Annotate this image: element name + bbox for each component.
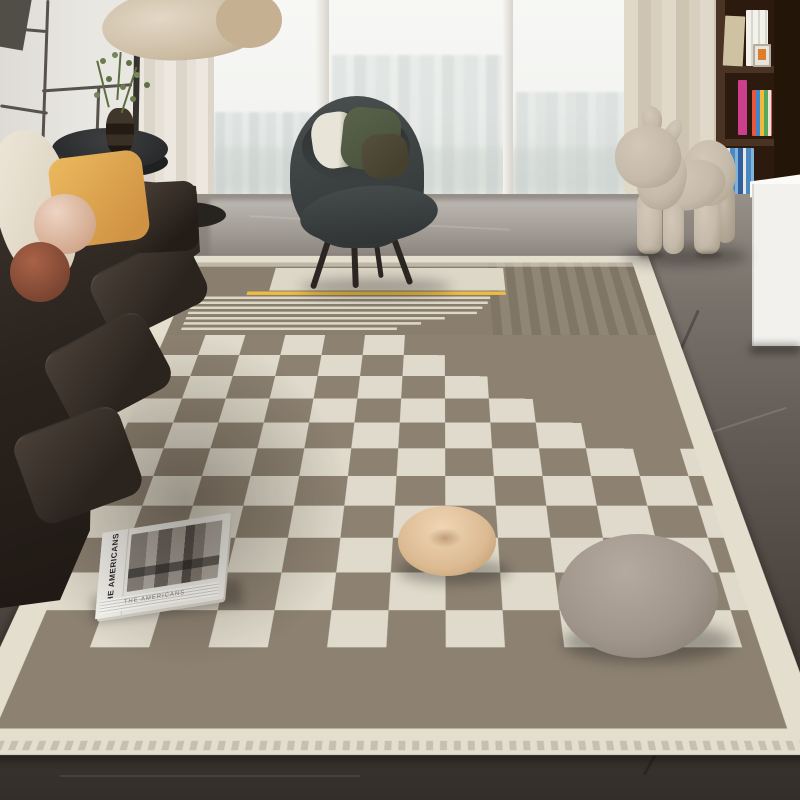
- rug-fringe: [0, 741, 800, 750]
- pony-front-leg: [663, 204, 684, 254]
- rug-stair-step: [479, 355, 671, 376]
- rug-stair-step: [522, 376, 677, 399]
- pony-foot-shadow: [638, 252, 664, 258]
- rug-stripe: [194, 297, 491, 299]
- rug-stripe: [183, 322, 421, 325]
- rug-stripe: [190, 307, 483, 309]
- rug-stair-step: [569, 399, 686, 423]
- pouf-crease: [428, 528, 462, 548]
- armchair-shadow: [300, 278, 452, 296]
- armchair-olive-cushion: [361, 132, 410, 179]
- rug-top-section: [166, 263, 657, 335]
- rug-stripe: [181, 328, 397, 331]
- beige-round-pouf: [398, 506, 496, 576]
- plant-leaves: [100, 58, 106, 64]
- rug-stripe: [185, 317, 444, 319]
- brown-ball-pillow: [10, 242, 70, 302]
- pony-foot-shadow: [695, 252, 722, 258]
- rug-stair-step: [437, 335, 663, 355]
- gray-plush-cushion: [558, 534, 718, 658]
- rug-stair-step: [618, 423, 694, 449]
- rug-top-band: [195, 263, 634, 267]
- living-room-photo: THE AMERICANS THE AMERICANS: [0, 0, 800, 800]
- rug-stripe-texture: [488, 263, 657, 335]
- rug-stripe: [187, 312, 476, 314]
- ribbed-vase: [106, 108, 134, 154]
- rug-stripe: [192, 302, 488, 304]
